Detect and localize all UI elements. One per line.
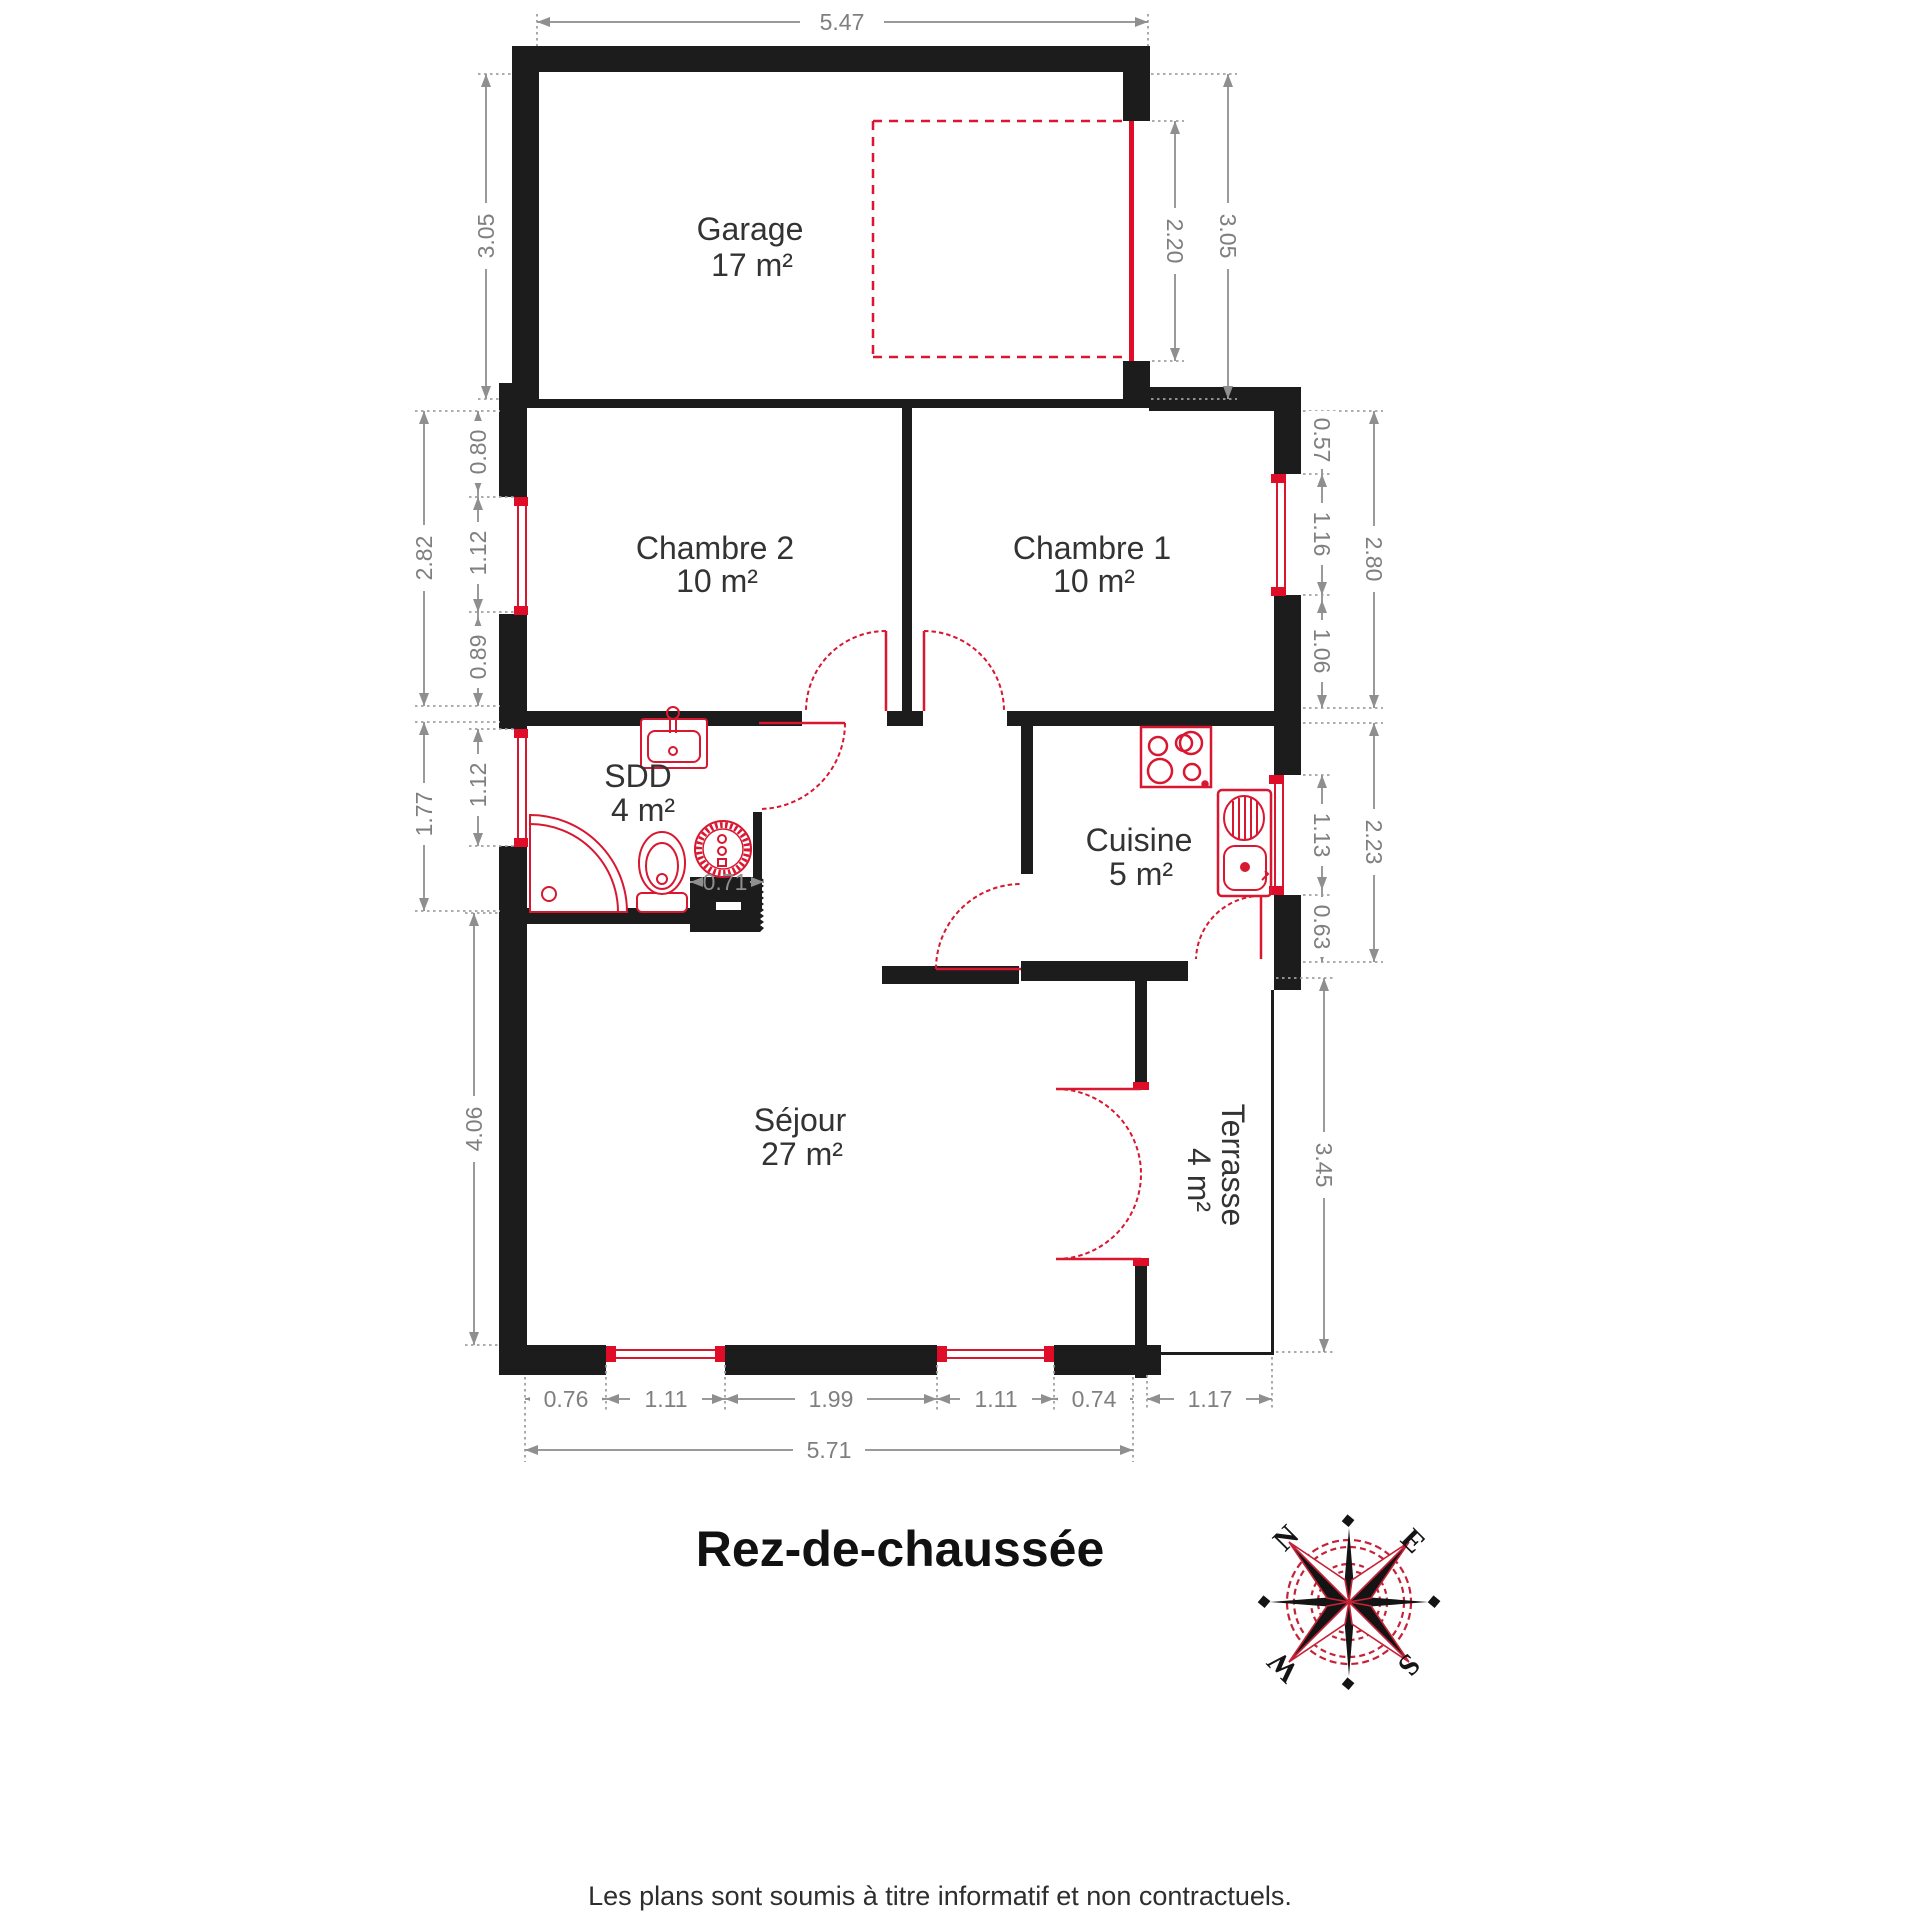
svg-text:2.23: 2.23 [1361,820,1387,865]
svg-text:Terrasse: Terrasse [1215,1104,1251,1227]
svg-text:5.71: 5.71 [807,1437,852,1463]
svg-text:0.76: 0.76 [544,1386,589,1412]
svg-text:1.12: 1.12 [465,763,491,808]
svg-text:3.05: 3.05 [473,214,499,259]
svg-text:0.80: 0.80 [465,430,491,475]
svg-text:1.16: 1.16 [1309,512,1335,557]
svg-text:4 m²: 4 m² [1181,1148,1217,1212]
svg-text:0.89: 0.89 [465,635,491,680]
svg-text:1.99: 1.99 [809,1386,854,1412]
svg-text:27 m²: 27 m² [761,1136,843,1172]
svg-text:5 m²: 5 m² [1109,856,1173,892]
svg-text:3.45: 3.45 [1311,1143,1337,1188]
svg-text:1.11: 1.11 [644,1386,687,1412]
svg-text:4.06: 4.06 [461,1107,487,1152]
svg-text:17 m²: 17 m² [711,247,793,283]
svg-text:Cuisine: Cuisine [1086,822,1193,858]
svg-text:4 m²: 4 m² [611,792,675,828]
svg-text:1.17: 1.17 [1188,1386,1233,1412]
svg-text:Séjour: Séjour [754,1102,847,1138]
svg-text:2.20: 2.20 [1162,219,1188,264]
svg-text:Garage: Garage [697,211,804,247]
svg-text:0.71: 0.71 [703,869,748,895]
svg-text:10 m²: 10 m² [1053,563,1135,599]
svg-text:0.63: 0.63 [1309,905,1335,950]
svg-text:Rez-de-chaussée: Rez-de-chaussée [696,1521,1105,1577]
svg-text:2.82: 2.82 [411,536,437,581]
svg-text:10 m²: 10 m² [676,563,758,599]
svg-text:2.80: 2.80 [1361,537,1387,582]
svg-text:0.57: 0.57 [1309,418,1335,463]
svg-text:Les plans sont soumis à titre: Les plans sont soumis à titre informatif… [588,1881,1292,1911]
svg-text:1.77: 1.77 [411,792,437,837]
svg-text:1.13: 1.13 [1309,813,1335,858]
svg-text:SDD: SDD [604,758,672,794]
svg-text:3.05: 3.05 [1215,214,1241,259]
svg-text:Chambre 1: Chambre 1 [1013,530,1171,566]
svg-text:1.12: 1.12 [465,531,491,576]
svg-text:Chambre 2: Chambre 2 [636,530,794,566]
svg-text:5.47: 5.47 [820,9,865,35]
svg-text:0.74: 0.74 [1072,1386,1117,1412]
svg-text:1.06: 1.06 [1309,629,1335,674]
svg-text:1.11: 1.11 [974,1386,1017,1412]
